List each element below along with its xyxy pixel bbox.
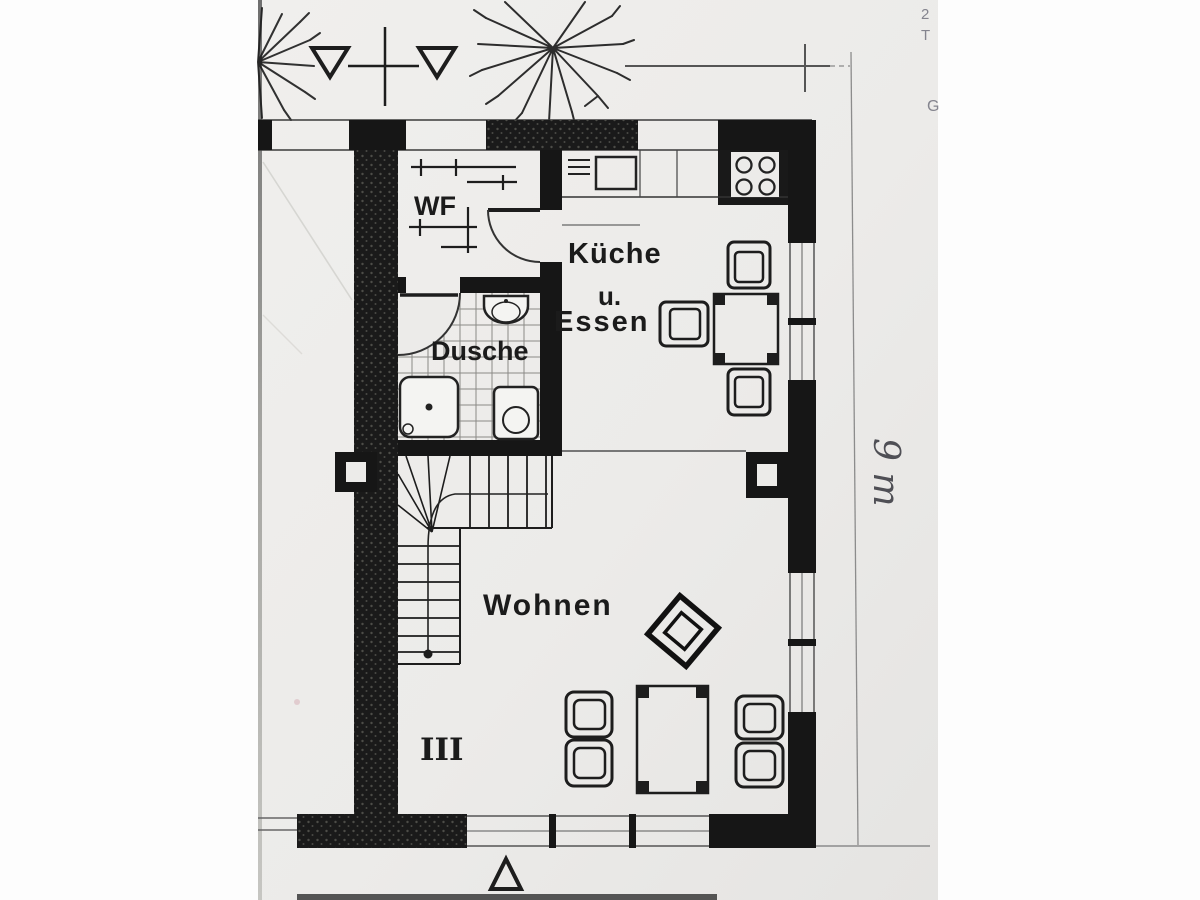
label-living: Wohnen — [483, 589, 613, 622]
floorplan-drawing: WF Küche u. Essen Dusche Wohnen III 9 m … — [0, 0, 1200, 900]
margin-text-fragment: G — [927, 98, 939, 115]
label-dining: Essen — [554, 306, 649, 338]
chimney-block — [335, 452, 377, 492]
label-entry-wf: WF — [414, 191, 456, 221]
washbasin-icon — [484, 296, 528, 323]
photo-bottom-shadow — [297, 894, 717, 900]
margin-text-fragment: T — [921, 27, 930, 44]
label-shower: Dusche — [431, 336, 529, 366]
radiator-mark: III — [420, 732, 464, 768]
label-kitchen: Küche — [568, 238, 662, 270]
margin-text-fragment: 2 — [921, 6, 929, 23]
stove-icon — [731, 152, 779, 197]
toilet-icon — [494, 387, 538, 439]
chimney-block — [746, 452, 788, 498]
handwritten-dimension: 9 m — [865, 438, 906, 506]
floorplan-photo: WF Küche u. Essen Dusche Wohnen III 9 m … — [0, 0, 1200, 900]
shower-tray-icon — [400, 377, 458, 437]
